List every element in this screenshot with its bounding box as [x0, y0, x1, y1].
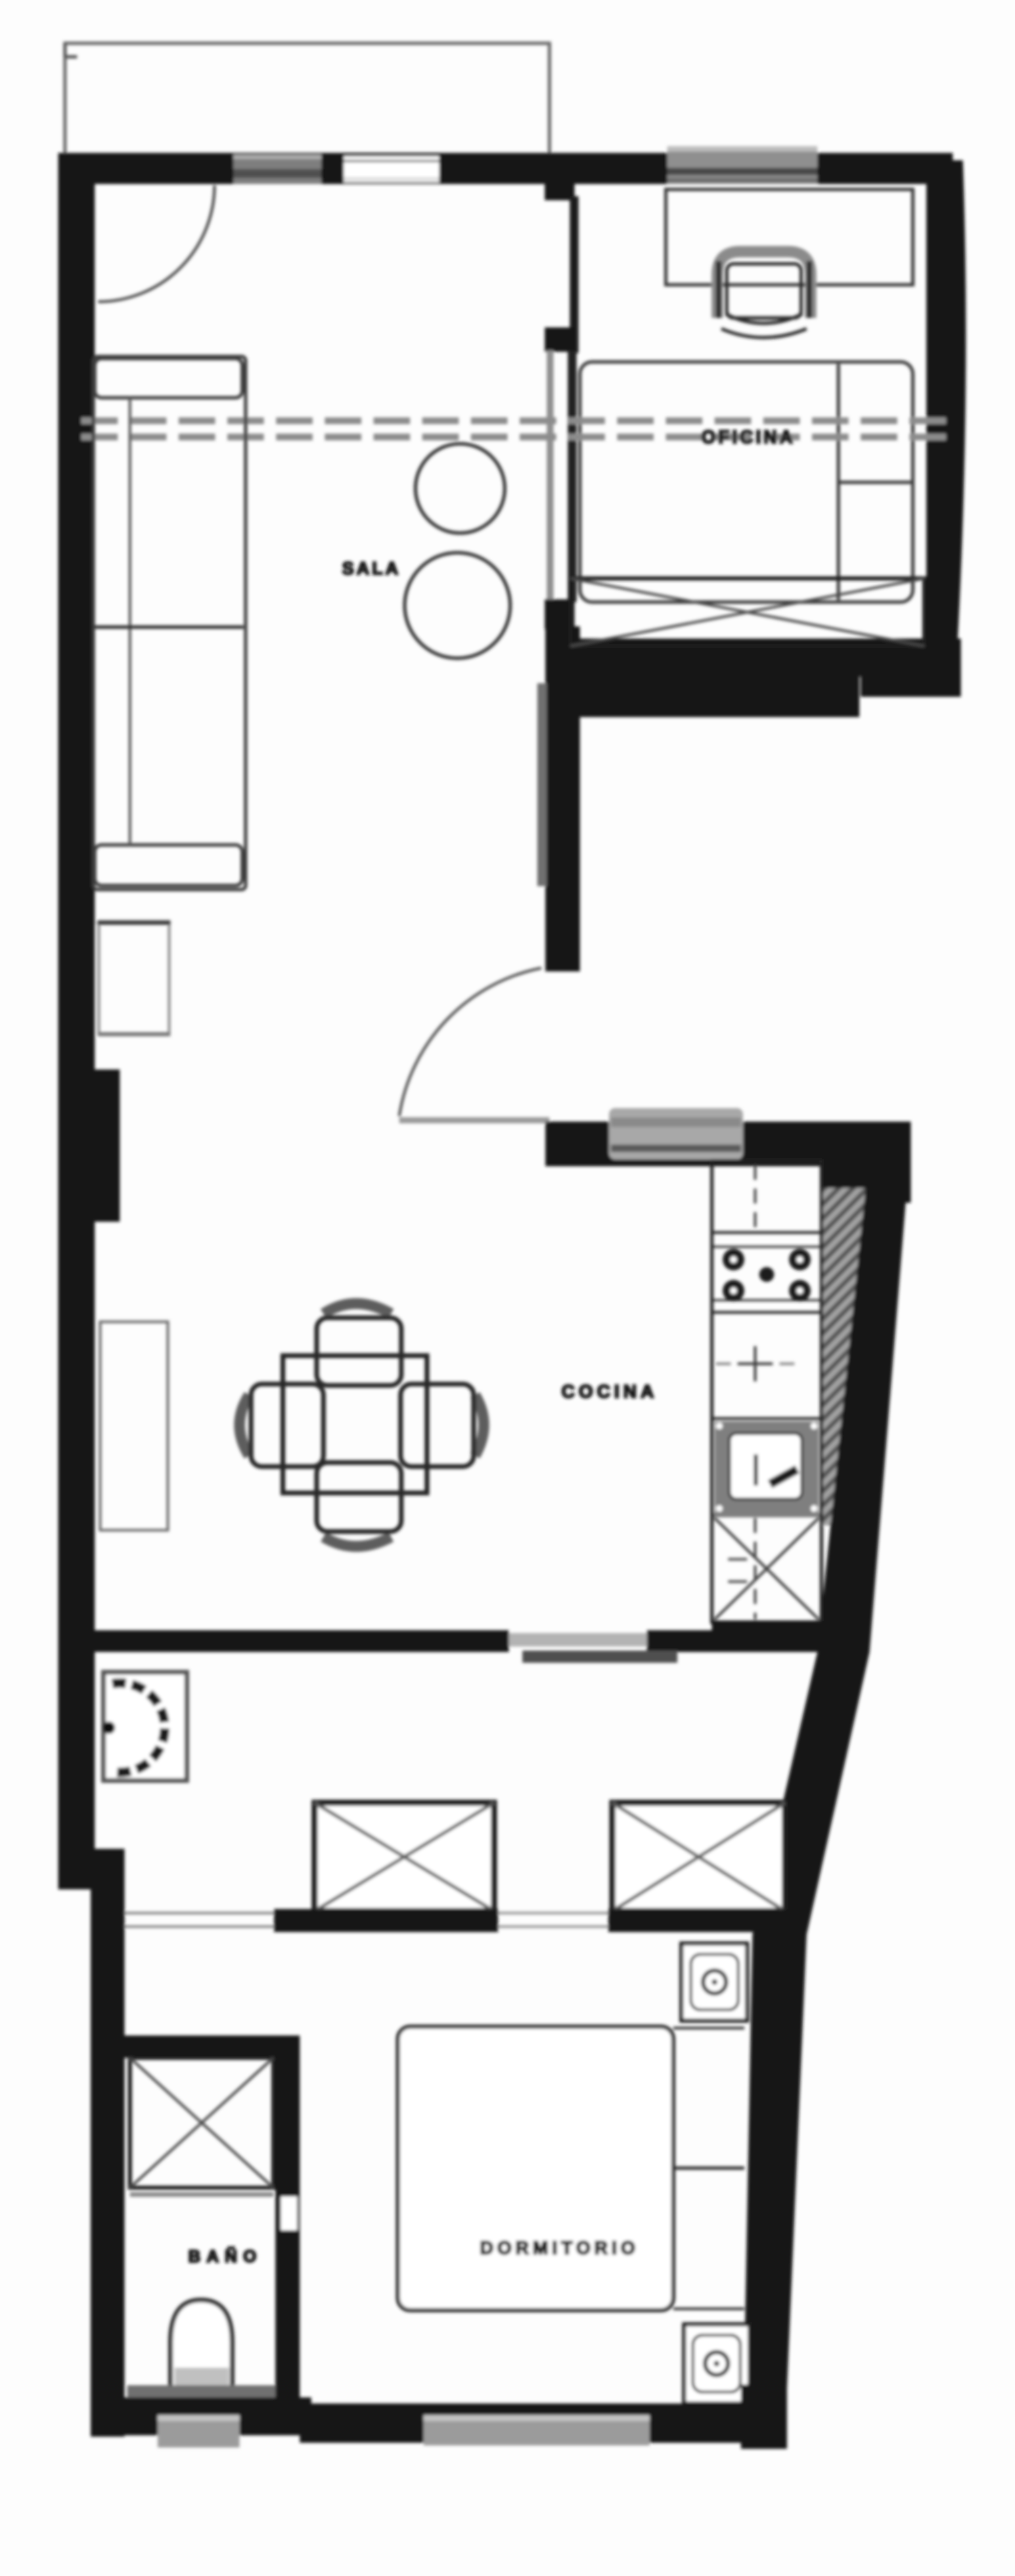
svg-text:BAÑO: BAÑO [188, 2246, 263, 2266]
svg-text:COCINA: COCINA [562, 1381, 658, 1402]
svg-text:OFICINA: OFICINA [702, 427, 796, 447]
svg-text:SALA: SALA [342, 558, 401, 578]
svg-text:DORMITORIO: DORMITORIO [480, 2238, 639, 2258]
